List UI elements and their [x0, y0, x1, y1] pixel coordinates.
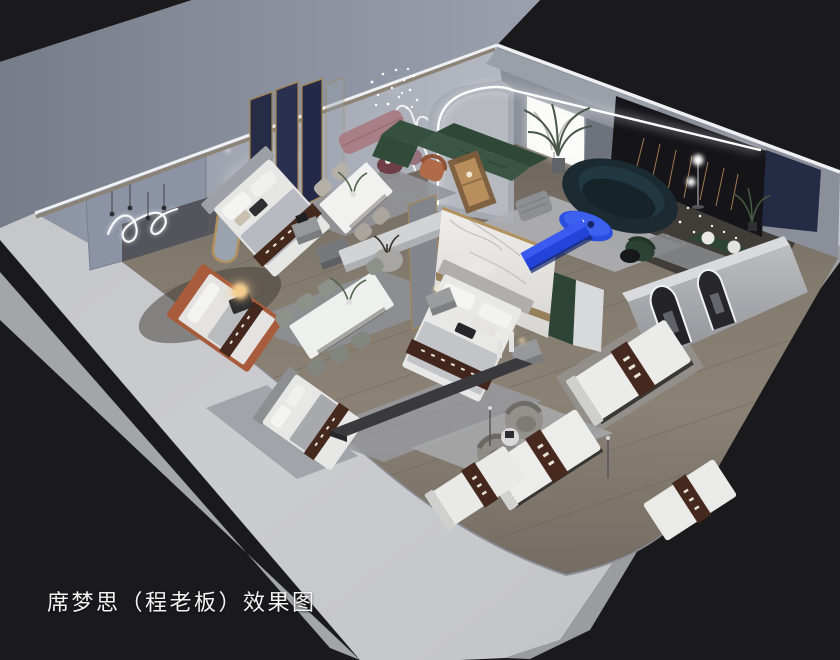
thin-floor-lamp-head — [606, 436, 610, 440]
white-wardrobe — [573, 280, 604, 352]
black-side-chair — [620, 249, 640, 263]
marble-pillow — [702, 232, 715, 245]
table-lamp-cube — [505, 431, 514, 438]
render-canvas: 席梦思（程老板）效果图 — [0, 0, 840, 660]
caption: 席梦思（程老板）效果图 — [47, 590, 317, 616]
vase — [350, 191, 356, 197]
marble-pillow — [728, 241, 741, 254]
scene-illustration — [0, 0, 840, 660]
vase — [346, 299, 352, 305]
thin-floor-lamp-head — [488, 406, 492, 410]
